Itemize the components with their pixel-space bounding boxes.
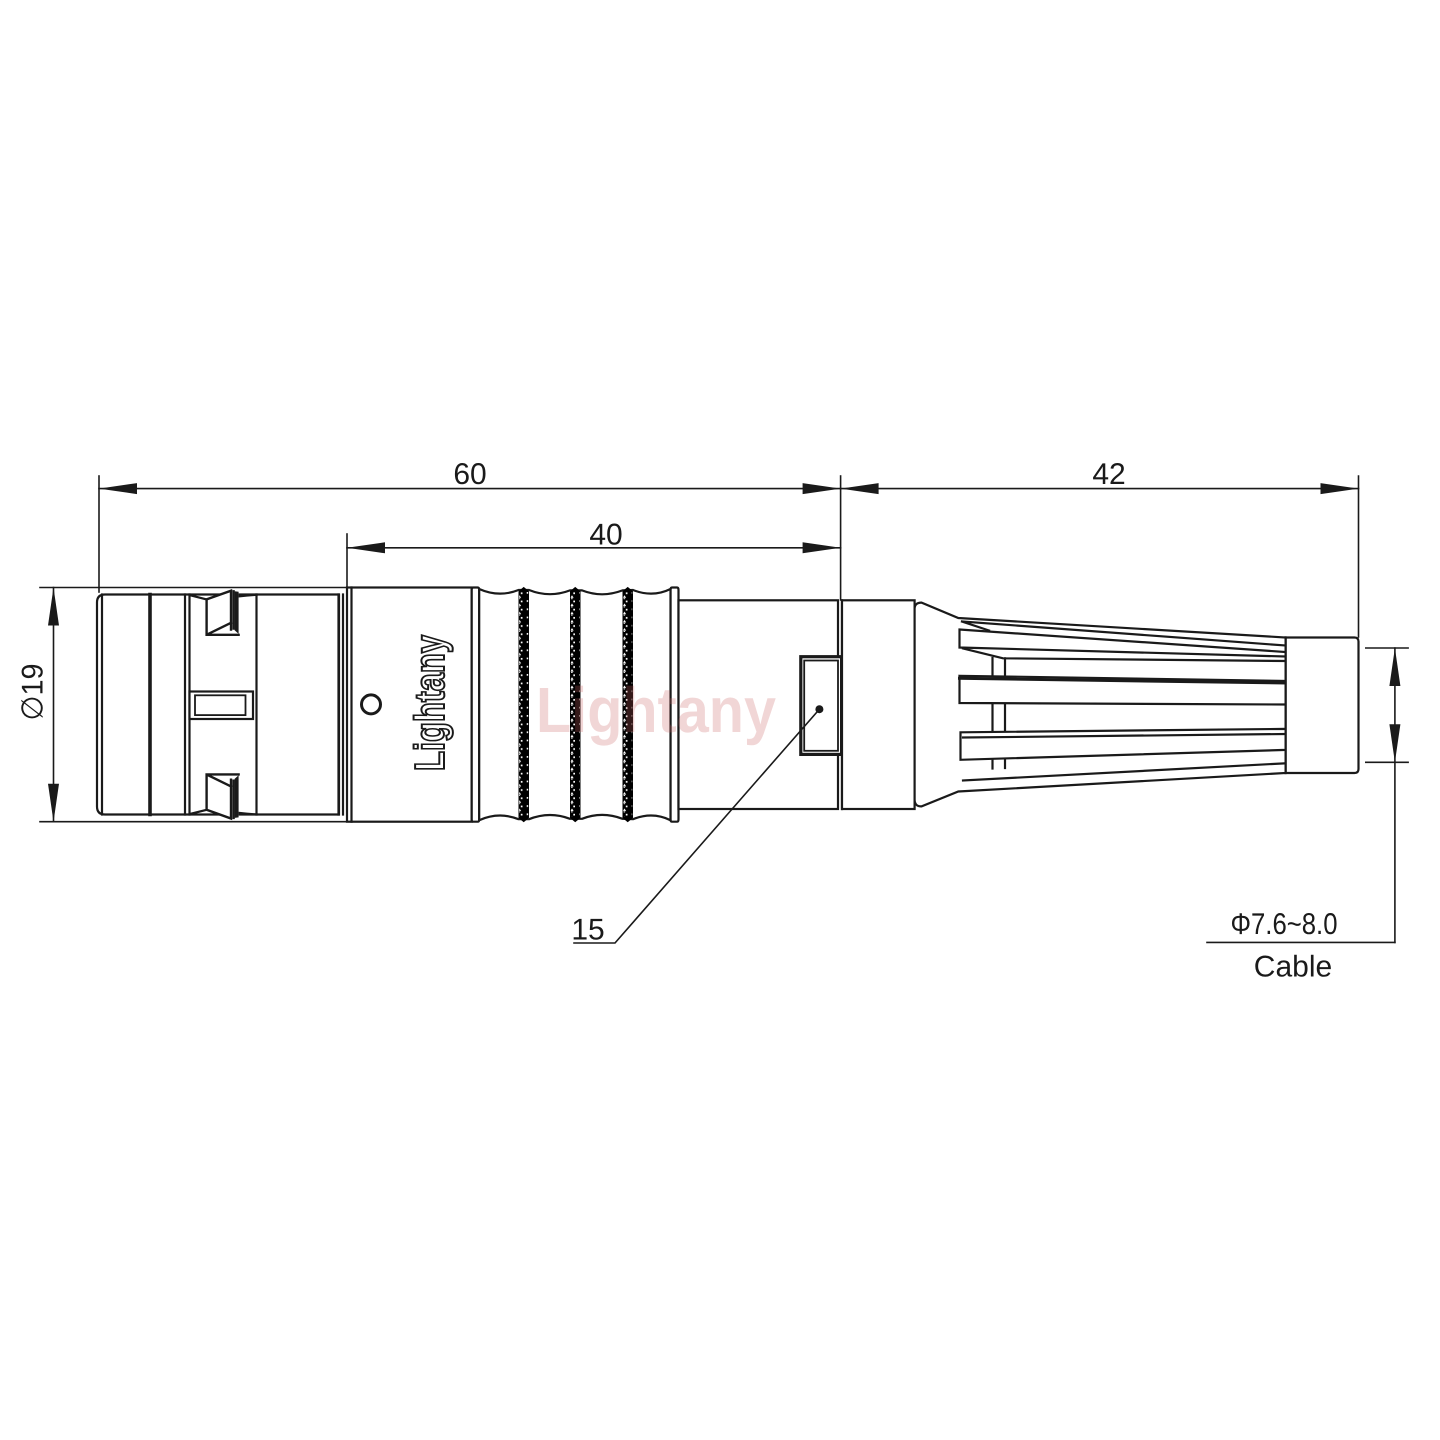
svg-text:40: 40 [589,519,622,552]
svg-text:Cable: Cable [1254,951,1332,984]
svg-text:60: 60 [453,458,486,491]
svg-text:Lightany: Lightany [406,635,453,771]
svg-text:Lightany: Lightany [536,674,776,746]
svg-text:42: 42 [1092,458,1125,491]
svg-text:15: 15 [571,914,604,947]
svg-text:∅19: ∅19 [17,664,50,721]
svg-text:Φ7.6~8.0: Φ7.6~8.0 [1231,908,1338,941]
